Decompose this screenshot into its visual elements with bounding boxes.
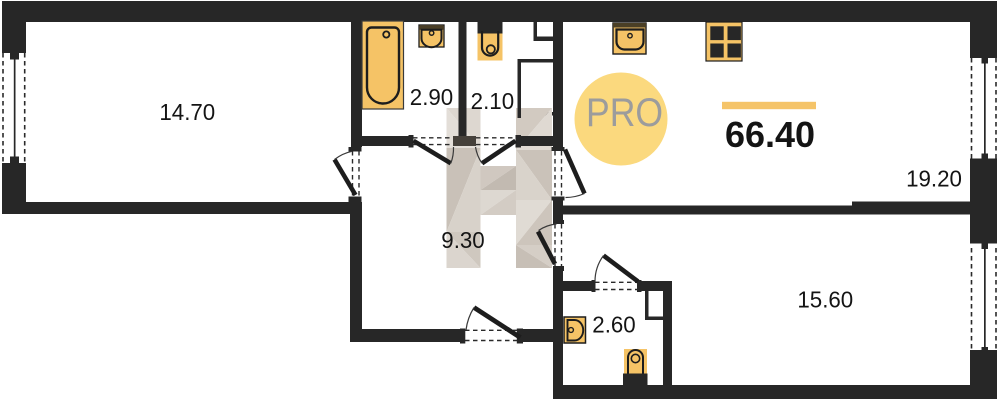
svg-text:9.30: 9.30 [441, 226, 484, 253]
svg-text:2.10: 2.10 [471, 87, 514, 114]
svg-text:19.20: 19.20 [906, 165, 962, 192]
svg-text:PRO: PRO [586, 90, 663, 134]
svg-text:2.90: 2.90 [410, 83, 453, 110]
svg-text:15.60: 15.60 [797, 286, 853, 313]
svg-text:2.60: 2.60 [592, 311, 635, 338]
svg-text:14.70: 14.70 [159, 98, 215, 125]
svg-text:66.40: 66.40 [725, 114, 815, 155]
